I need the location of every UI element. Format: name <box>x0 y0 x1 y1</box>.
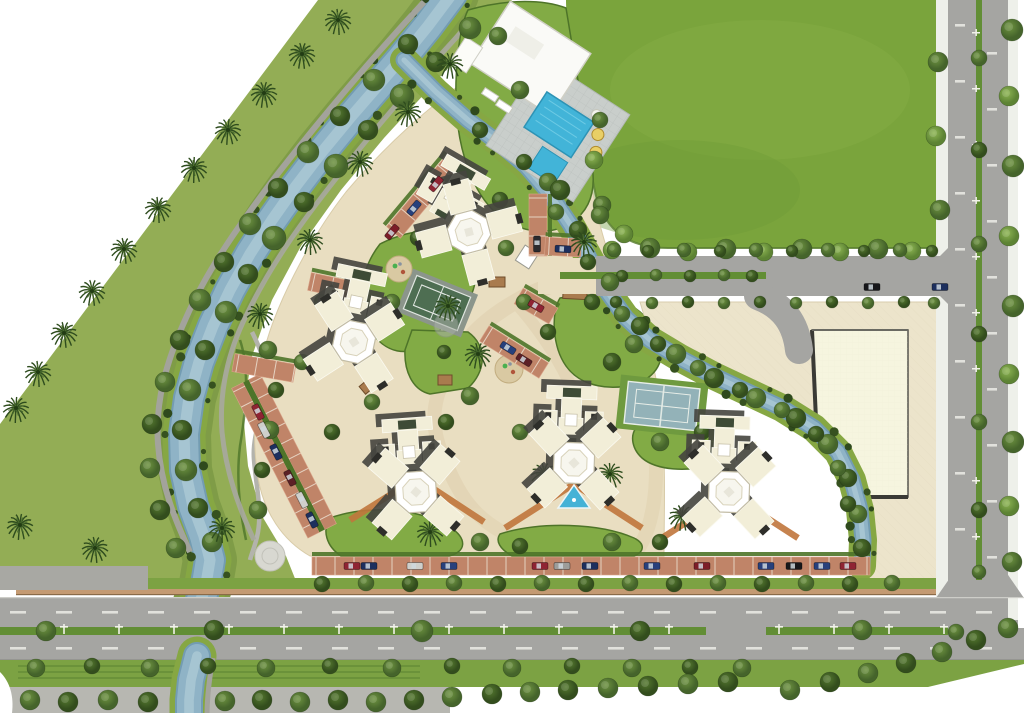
tree <box>328 690 348 710</box>
tree <box>607 243 621 257</box>
tree <box>926 126 946 146</box>
tree-highlight <box>153 503 161 511</box>
tree-highlight <box>604 276 611 283</box>
tree-highlight <box>494 194 500 200</box>
tree-highlight <box>198 343 206 351</box>
tree-highlight <box>681 677 689 685</box>
tree <box>862 297 874 309</box>
tree <box>366 692 386 712</box>
tree-highlight <box>101 693 109 701</box>
lane-marking <box>240 611 256 614</box>
lane-marking <box>955 304 965 307</box>
hedge-shrub <box>784 394 793 403</box>
tennis-court <box>615 375 708 438</box>
parked-car <box>441 563 457 570</box>
tree <box>601 273 619 291</box>
hedge-shrub <box>163 409 172 418</box>
tree <box>314 576 330 592</box>
tree-highlight <box>612 298 617 303</box>
tree-highlight <box>616 308 622 314</box>
tree <box>446 575 462 591</box>
tree-highlight <box>800 577 806 583</box>
tree-highlight <box>445 690 453 698</box>
tree-highlight <box>143 461 151 469</box>
tree-highlight <box>401 37 409 45</box>
tree-highlight <box>855 623 863 631</box>
tree-highlight <box>634 320 641 327</box>
tree-highlight <box>899 656 907 664</box>
lane-marking <box>930 611 946 614</box>
tree-highlight <box>1005 555 1013 563</box>
tree <box>746 388 766 408</box>
tree <box>704 368 724 388</box>
hedge-shrub <box>176 352 185 361</box>
tree <box>682 659 698 675</box>
tree-highlight <box>255 693 263 701</box>
hedge-shrub <box>652 327 659 334</box>
tree <box>858 663 878 683</box>
tree-highlight <box>844 578 850 584</box>
tree <box>548 204 564 220</box>
tree-highlight <box>606 536 613 543</box>
tree <box>780 680 800 700</box>
tree <box>754 576 770 592</box>
lane-marking <box>148 647 164 650</box>
tree <box>971 142 987 158</box>
tree <box>798 575 814 591</box>
tree-highlight <box>361 123 369 131</box>
tree <box>411 620 433 642</box>
lane-marking <box>378 611 394 614</box>
tree-highlight <box>205 535 213 543</box>
tree <box>677 243 691 257</box>
tree <box>550 180 570 200</box>
tree-highlight <box>928 247 933 252</box>
entrance-road-median <box>560 272 766 279</box>
tree <box>503 659 521 677</box>
hedge-shrub <box>716 363 721 368</box>
tree <box>650 336 666 352</box>
tree-highlight <box>644 247 649 252</box>
site-plan <box>0 0 1024 713</box>
tree <box>578 576 594 592</box>
tree-highlight <box>900 298 905 303</box>
tree <box>898 296 910 308</box>
lane-marking <box>955 416 965 419</box>
tree <box>330 106 350 126</box>
tree <box>363 69 385 91</box>
tree <box>1002 155 1024 177</box>
tree-highlight <box>776 404 782 410</box>
tree <box>858 245 870 257</box>
tree <box>249 501 267 519</box>
lane-marking <box>654 647 670 650</box>
tree <box>971 502 987 518</box>
site-plan-rendering <box>0 0 1024 713</box>
hedge-shrub <box>227 329 234 336</box>
tree-highlight <box>828 298 833 303</box>
hedge-shrub <box>262 259 271 268</box>
tree-highlight <box>626 662 633 669</box>
south-road-median <box>0 627 706 635</box>
tree-highlight <box>207 623 215 631</box>
tree-highlight <box>716 247 721 252</box>
boundary-wall <box>16 589 1024 594</box>
tree-highlight <box>141 695 149 703</box>
hedge-shrub <box>187 552 196 561</box>
tree-highlight <box>242 216 251 225</box>
lane-marking <box>792 647 808 650</box>
tree <box>516 154 532 170</box>
tree-highlight <box>218 304 227 313</box>
tree-highlight <box>366 396 372 402</box>
tree <box>398 34 418 54</box>
tree <box>630 621 650 641</box>
hedge-shrub <box>470 106 479 115</box>
lane-marking <box>56 647 72 650</box>
parked-car <box>644 563 660 570</box>
hedge-shrub <box>321 177 328 184</box>
parked-car <box>864 284 880 291</box>
tree-highlight <box>218 694 226 702</box>
tree-highlight <box>684 661 690 667</box>
hedge-shrub <box>373 111 382 120</box>
tree <box>215 691 235 711</box>
tree-highlight <box>973 328 979 334</box>
tree-highlight <box>328 158 338 168</box>
tree-highlight <box>553 183 561 191</box>
lane-marking <box>10 611 26 614</box>
tree <box>592 112 608 128</box>
tree <box>598 678 618 698</box>
tree-highlight <box>628 338 635 345</box>
tree-highlight <box>1002 229 1010 237</box>
tree-highlight <box>712 577 718 583</box>
tree <box>998 618 1018 638</box>
tree-highlight <box>692 362 698 368</box>
tree-highlight <box>270 384 276 390</box>
hedge-shrub <box>871 551 876 556</box>
tree-highlight <box>618 272 623 277</box>
tree-highlight <box>734 384 740 390</box>
tree-highlight <box>973 238 979 244</box>
tree-highlight <box>464 390 471 397</box>
tree-highlight <box>721 675 729 683</box>
tree <box>774 402 790 418</box>
tree-highlight <box>271 181 279 189</box>
tree <box>200 658 216 674</box>
tree-highlight <box>144 662 151 669</box>
tree <box>972 565 986 579</box>
lane-marking <box>987 220 997 223</box>
lane-marking <box>987 164 997 167</box>
tree-highlight <box>783 683 791 691</box>
lane-marking <box>955 24 965 27</box>
tree-highlight <box>582 256 588 262</box>
parked-car <box>532 563 548 570</box>
tree <box>820 672 840 692</box>
tree <box>928 297 940 309</box>
parked-car <box>534 236 541 252</box>
tree <box>204 620 224 640</box>
tree-highlight <box>514 426 520 432</box>
tree <box>294 192 314 212</box>
tree <box>642 245 654 257</box>
tree-highlight <box>601 681 609 689</box>
lane-marking <box>987 500 997 503</box>
tree <box>614 306 630 322</box>
tree <box>893 243 907 257</box>
tree-highlight <box>202 660 208 666</box>
tree <box>884 575 900 591</box>
lane-marking <box>470 611 486 614</box>
tree-highlight <box>324 660 330 666</box>
tree <box>138 692 158 712</box>
tree-highlight <box>652 271 657 276</box>
hedge-shrub <box>474 138 481 145</box>
lane-marking <box>148 611 164 614</box>
tree-highlight <box>832 462 838 468</box>
tree <box>179 379 201 401</box>
tree <box>971 326 987 342</box>
tree <box>646 297 658 309</box>
tree <box>638 676 658 696</box>
tree <box>268 382 284 398</box>
parked-car <box>407 563 423 570</box>
tree-highlight <box>749 391 757 399</box>
tree-highlight <box>523 685 531 693</box>
hedge-shrub <box>201 449 206 454</box>
lane-marking <box>955 472 965 475</box>
pergola <box>438 375 452 385</box>
tree <box>714 245 726 257</box>
tree <box>534 575 550 591</box>
parked-car <box>814 563 830 570</box>
tree <box>842 576 858 592</box>
tree <box>786 245 798 257</box>
lane-marking <box>424 647 440 650</box>
tree <box>459 17 481 39</box>
tree <box>678 674 698 694</box>
tree-highlight <box>297 195 305 203</box>
parked-car <box>582 563 598 570</box>
tree <box>170 330 190 350</box>
lane-marking <box>240 647 256 650</box>
hedge-shrub <box>199 461 208 470</box>
tree-highlight <box>446 660 452 666</box>
tree-highlight <box>86 660 92 666</box>
tree-highlight <box>684 298 689 303</box>
lane-marking <box>378 647 394 650</box>
tree <box>585 151 603 169</box>
tree-highlight <box>542 326 548 332</box>
tree <box>20 690 40 710</box>
hedge-shrub <box>722 390 731 399</box>
hedge-shrub <box>210 279 215 284</box>
tree <box>999 496 1019 516</box>
tree-highlight <box>169 541 177 549</box>
tree-highlight <box>404 578 410 584</box>
tree-highlight <box>241 267 249 275</box>
tree <box>482 684 502 704</box>
lane-marking <box>286 647 302 650</box>
tree <box>928 52 948 72</box>
tree-highlight <box>720 299 725 304</box>
parked-car <box>932 284 948 291</box>
hedge-shrub <box>869 506 874 511</box>
lane-marking <box>987 444 997 447</box>
tree <box>364 394 380 410</box>
tree-highlight <box>810 428 816 434</box>
boundary-wall-shadow <box>16 594 1024 595</box>
tree <box>195 340 215 360</box>
tree-highlight <box>930 299 935 304</box>
tree-highlight <box>860 247 865 252</box>
lane-marking <box>955 136 965 139</box>
tree-highlight <box>61 695 69 703</box>
tree-highlight <box>973 416 979 422</box>
tree-highlight <box>594 209 601 216</box>
lane-marking <box>792 611 808 614</box>
lane-marking <box>746 647 762 650</box>
tree-highlight <box>217 255 225 263</box>
tree <box>27 659 45 677</box>
hedge-shrub <box>527 185 532 190</box>
tree-highlight <box>366 72 375 81</box>
tree <box>444 658 460 674</box>
tree <box>733 659 751 677</box>
tree-highlight <box>474 536 481 543</box>
tree-highlight <box>492 578 498 584</box>
tree <box>622 575 638 591</box>
tree <box>580 254 596 270</box>
tree <box>1002 295 1024 317</box>
tree-highlight <box>931 55 939 63</box>
hedge-shrub <box>457 95 462 100</box>
tree <box>172 420 192 440</box>
tree-highlight <box>326 426 332 432</box>
hedge-shrub <box>767 387 772 392</box>
lane-marking <box>608 611 624 614</box>
tree <box>262 226 286 250</box>
tree <box>790 297 802 309</box>
tree <box>297 141 319 163</box>
tree-highlight <box>266 230 276 240</box>
tree <box>615 225 633 243</box>
tree <box>826 296 838 308</box>
lane-marking <box>987 276 997 279</box>
tree <box>140 458 160 478</box>
tree <box>623 659 641 677</box>
tree <box>682 296 694 308</box>
tree-highlight <box>518 296 524 302</box>
tree-highlight <box>407 693 415 701</box>
tree-highlight <box>823 245 829 251</box>
tree <box>651 433 669 451</box>
lane-marking <box>700 611 716 614</box>
tree <box>966 630 986 650</box>
tree-highlight <box>736 662 743 669</box>
tree <box>402 576 418 592</box>
tree <box>710 575 726 591</box>
tree-highlight <box>1005 434 1014 443</box>
tree-highlight <box>293 695 301 703</box>
tree-highlight <box>973 144 979 150</box>
tree <box>188 498 208 518</box>
tree-highlight <box>668 578 674 584</box>
tree-highlight <box>500 242 506 248</box>
tree-highlight <box>173 333 181 341</box>
hedge-shrub <box>864 488 871 495</box>
tree <box>489 27 507 45</box>
tree-highlight <box>331 693 339 701</box>
tree-highlight <box>252 504 259 511</box>
lane-marking <box>955 80 965 83</box>
tree-highlight <box>654 436 661 443</box>
tree-highlight <box>871 242 879 250</box>
tree-highlight <box>182 382 191 391</box>
tree <box>141 659 159 677</box>
lane-marking <box>884 611 900 614</box>
hedge-shrub <box>616 324 621 329</box>
tree <box>718 672 738 692</box>
tree <box>650 269 662 281</box>
parked-car <box>554 563 570 570</box>
tree <box>926 245 938 257</box>
tree <box>625 335 643 353</box>
tree <box>830 460 846 476</box>
tree <box>808 426 824 442</box>
tree-highlight <box>178 462 187 471</box>
tree <box>239 213 261 235</box>
tree-highlight <box>618 228 625 235</box>
playground <box>386 256 412 282</box>
tree-highlight <box>394 88 404 98</box>
tree <box>511 81 529 99</box>
tree <box>142 414 162 434</box>
parked-car <box>758 563 774 570</box>
tree <box>512 538 528 554</box>
tree-highlight <box>1005 158 1014 167</box>
tree-highlight <box>561 683 569 691</box>
tree <box>896 653 916 673</box>
hedge-shrub <box>212 510 221 519</box>
parked-car <box>840 563 856 570</box>
tree <box>666 344 686 364</box>
tree-highlight <box>886 577 892 583</box>
tree <box>358 575 374 591</box>
tree <box>584 294 600 310</box>
tree-highlight <box>429 55 437 63</box>
tree <box>166 538 186 558</box>
tree-highlight <box>1002 367 1010 375</box>
tree-highlight <box>895 245 901 251</box>
tree <box>383 659 401 677</box>
tree-highlight <box>933 203 941 211</box>
tree-highlight <box>300 144 309 153</box>
tree-highlight <box>707 371 715 379</box>
tree <box>437 345 451 359</box>
tree-highlight <box>756 578 762 584</box>
tree-highlight <box>969 633 977 641</box>
tree <box>498 240 514 256</box>
tree <box>1002 552 1022 572</box>
tree <box>932 642 952 662</box>
tree <box>358 120 378 140</box>
tree <box>290 692 310 712</box>
tree-highlight <box>861 666 869 674</box>
paved-plaza-circle <box>255 541 285 571</box>
